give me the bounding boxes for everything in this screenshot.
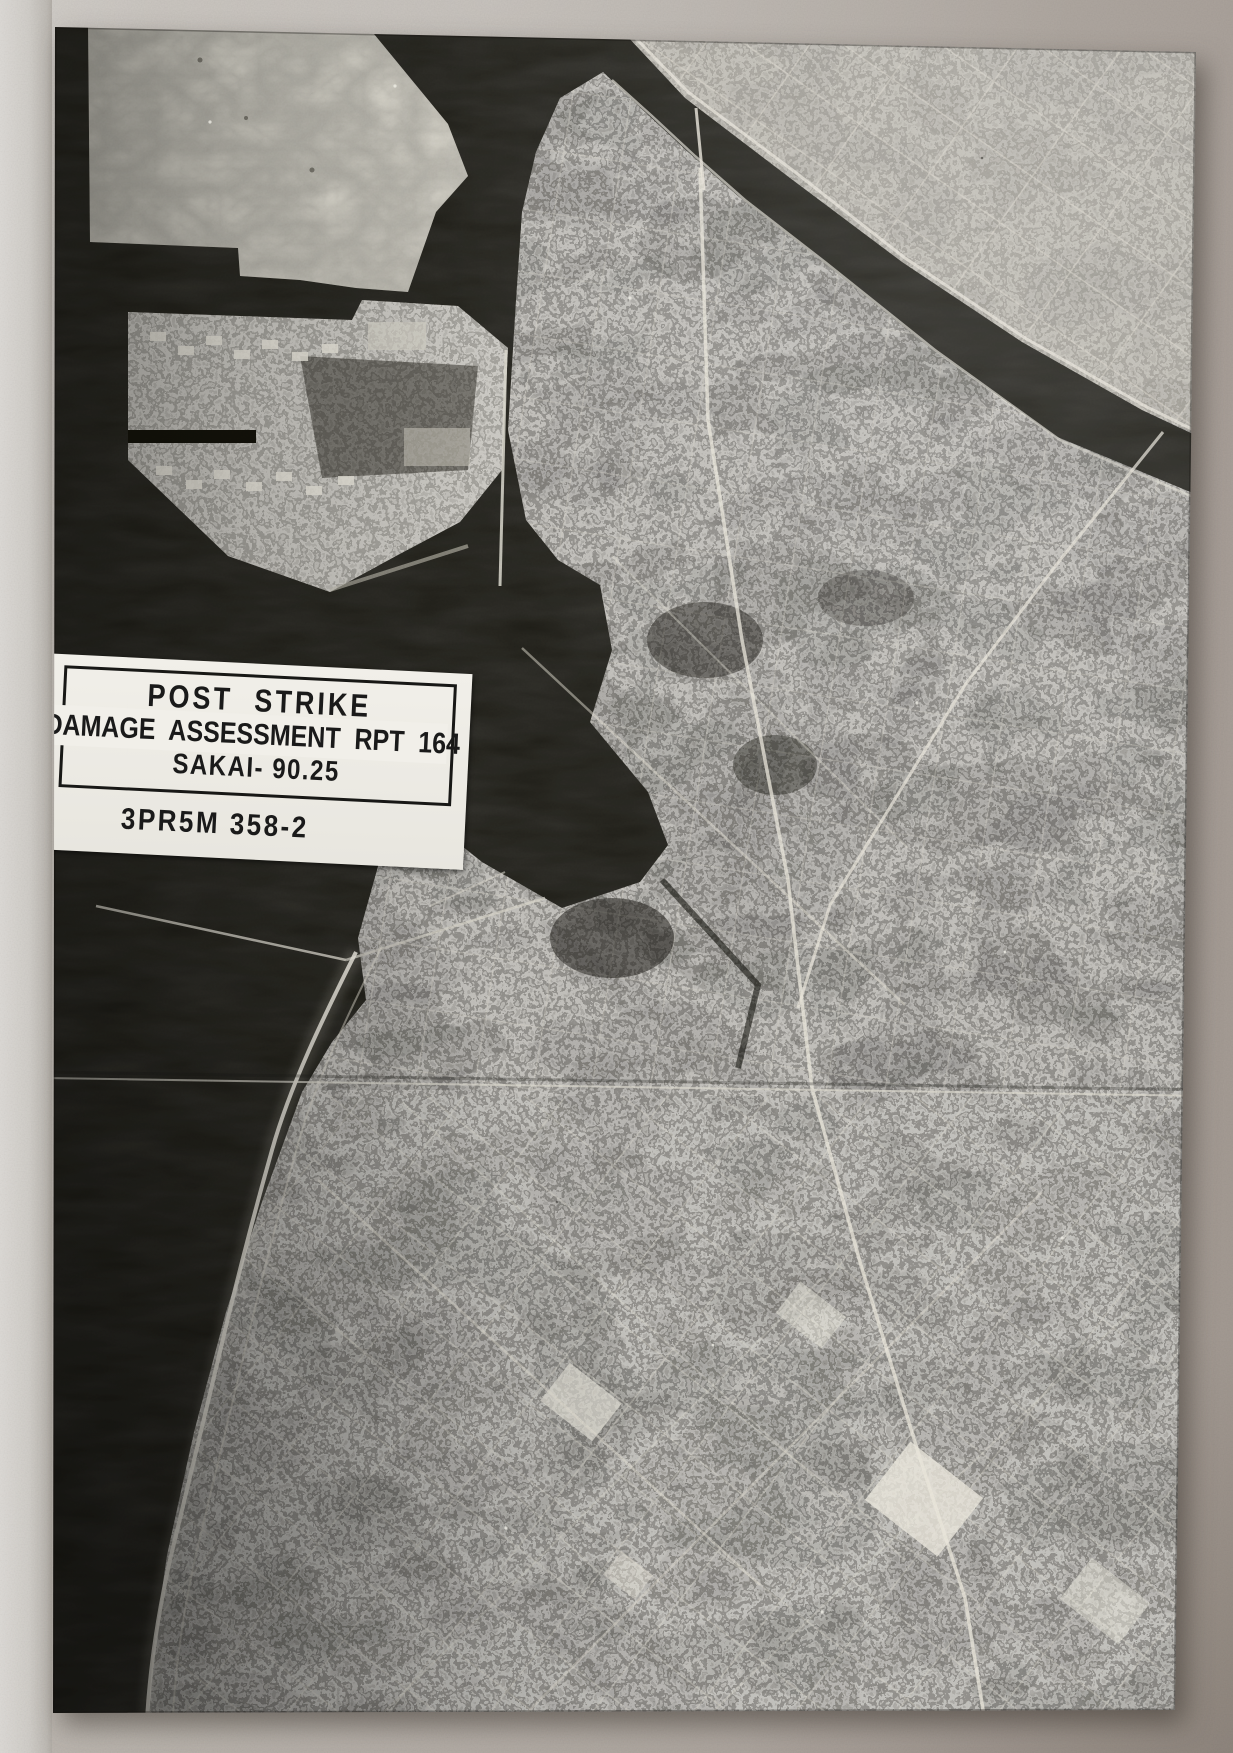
aerial-photo <box>0 0 1233 1753</box>
photo-info-label: POST STRIKE DAMAGE ASSESSMENT RPT 164 SA… <box>31 653 472 870</box>
label-box: POST STRIKE DAMAGE ASSESSMENT RPT 164 SA… <box>58 665 456 806</box>
shade-bottomleft <box>40 20 1215 1735</box>
photo-print-surface: POST STRIKE DAMAGE ASSESSMENT RPT 164 SA… <box>0 0 1233 1753</box>
scene: POST STRIKE DAMAGE ASSESSMENT RPT 164 SA… <box>0 0 1233 1753</box>
label-reference-number: 3PR5M 358-2 <box>120 801 465 852</box>
photo-print: POST STRIKE DAMAGE ASSESSMENT RPT 164 SA… <box>0 0 1233 1753</box>
